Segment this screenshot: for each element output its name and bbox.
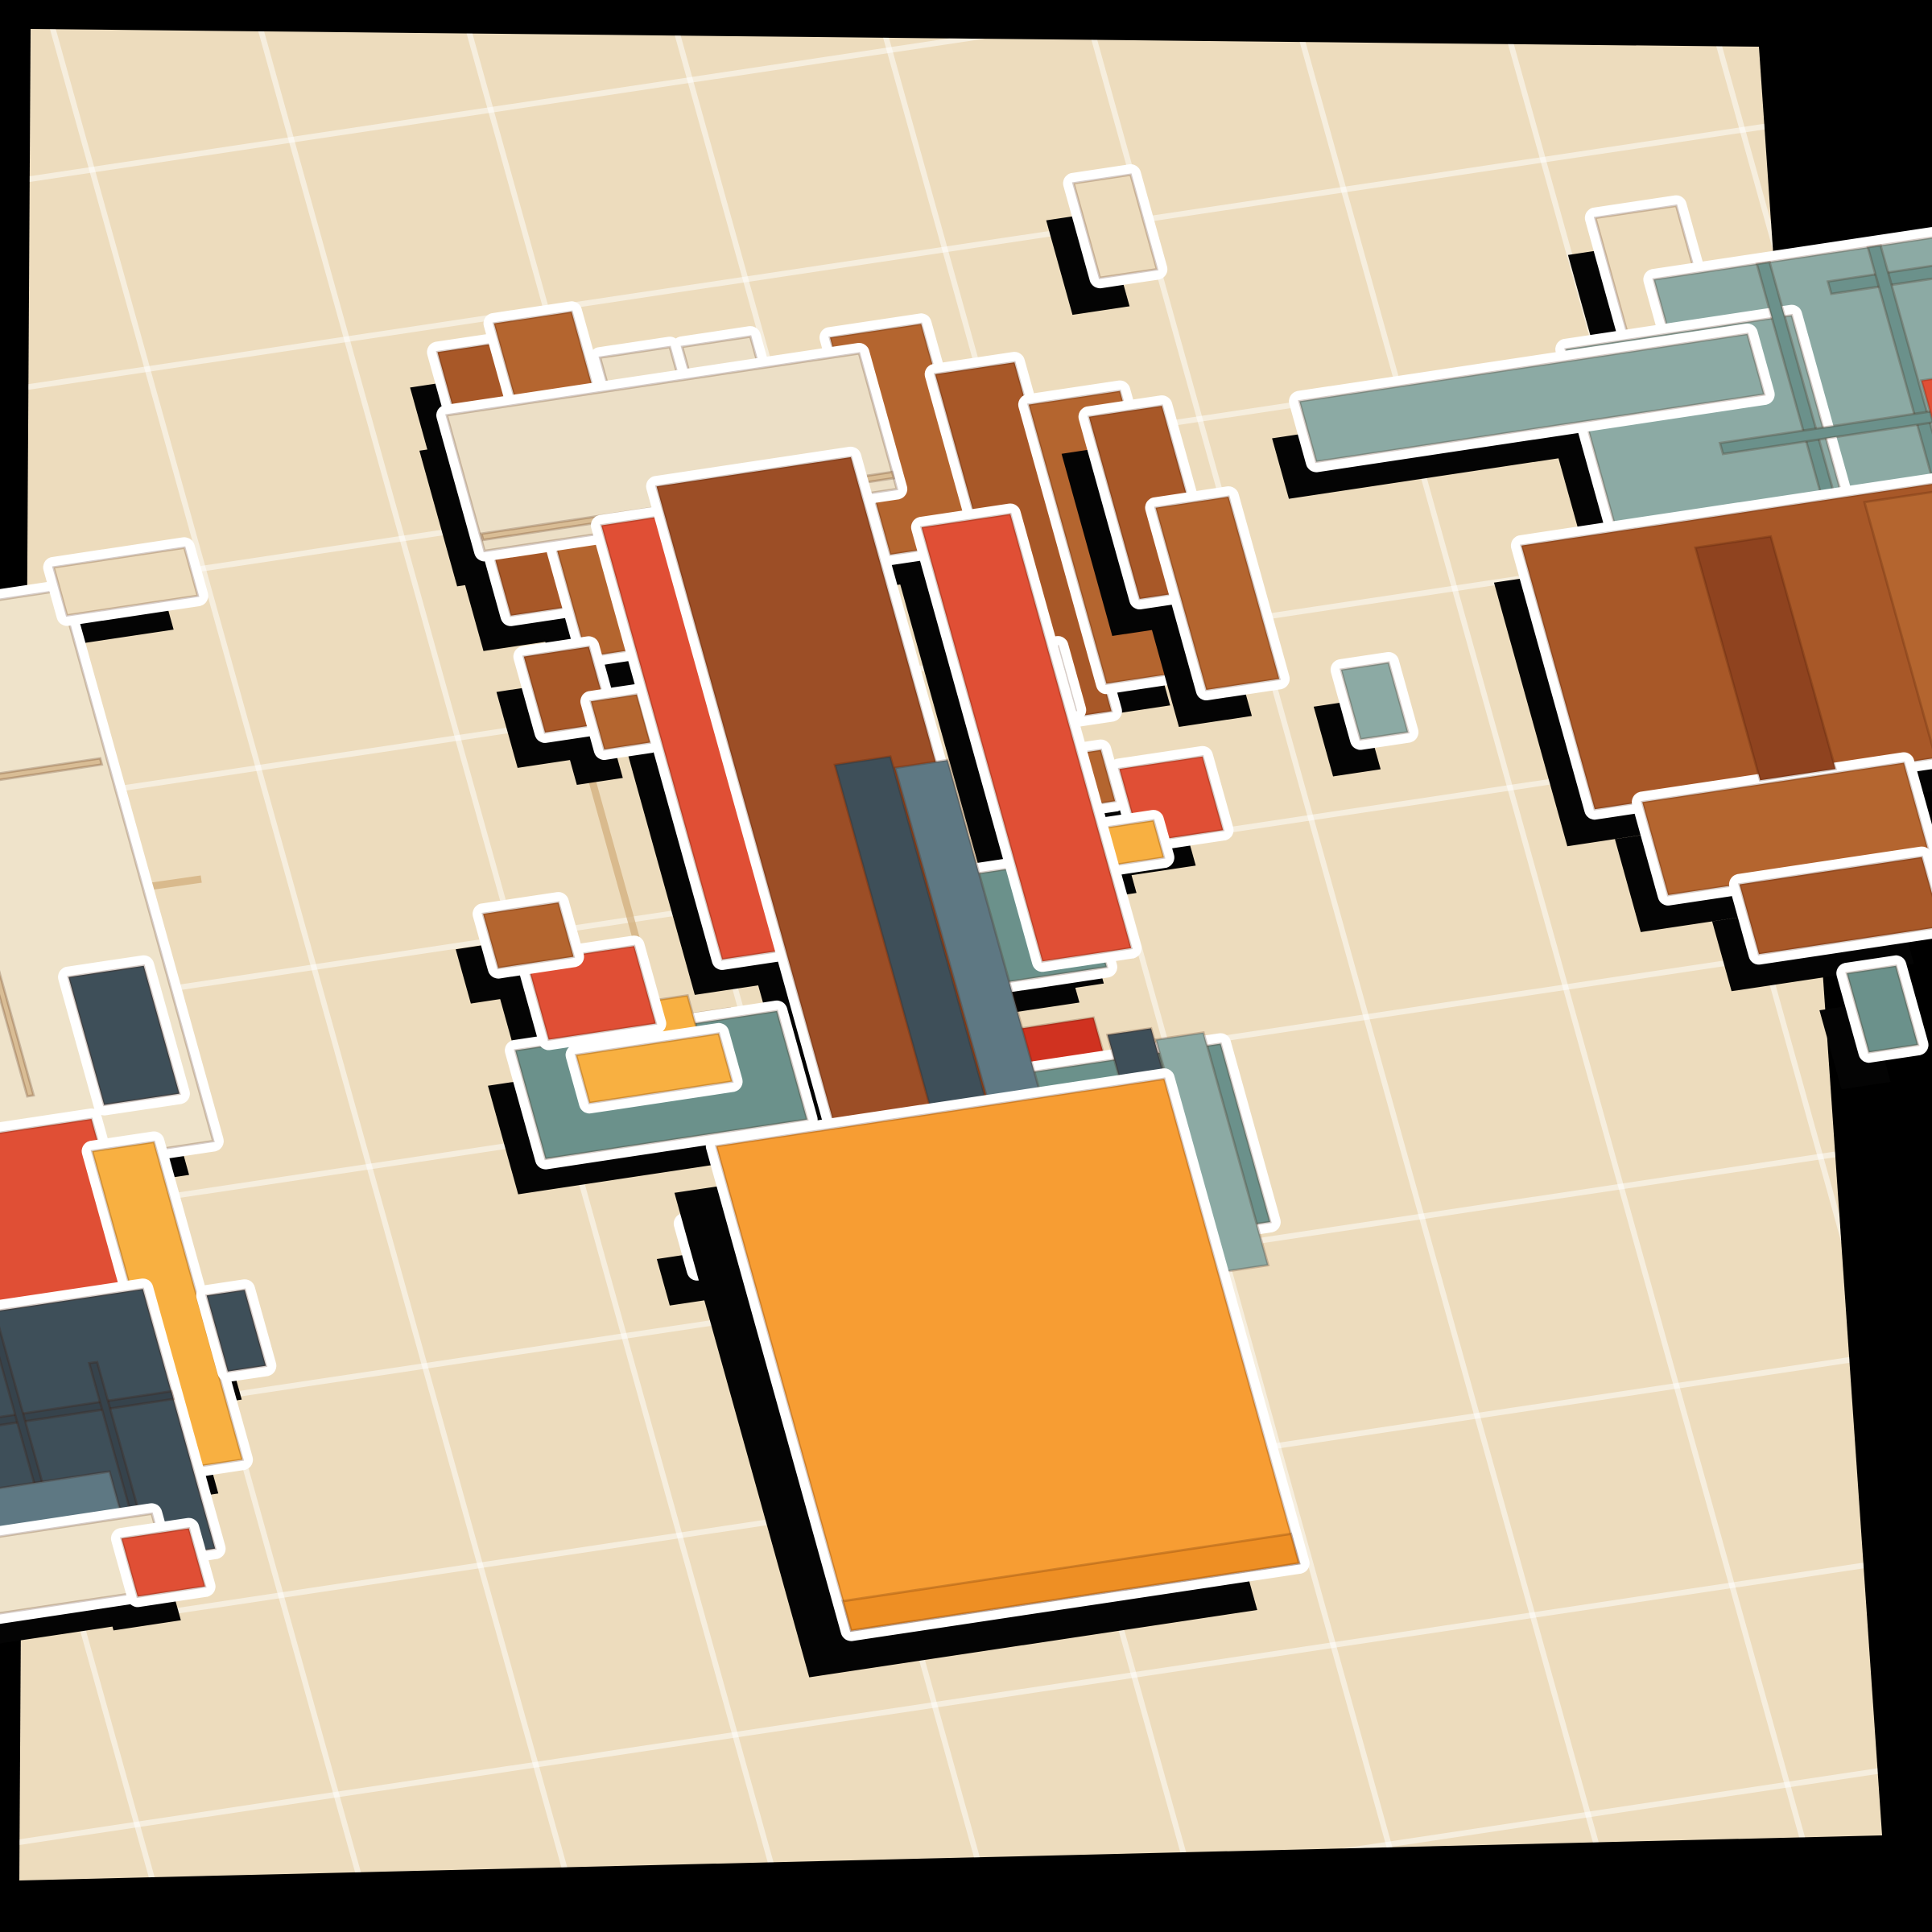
artwork-svg <box>0 0 1932 1932</box>
art-rect <box>122 1529 205 1597</box>
artwork-frame <box>0 0 1932 1932</box>
art-rect <box>483 902 573 968</box>
